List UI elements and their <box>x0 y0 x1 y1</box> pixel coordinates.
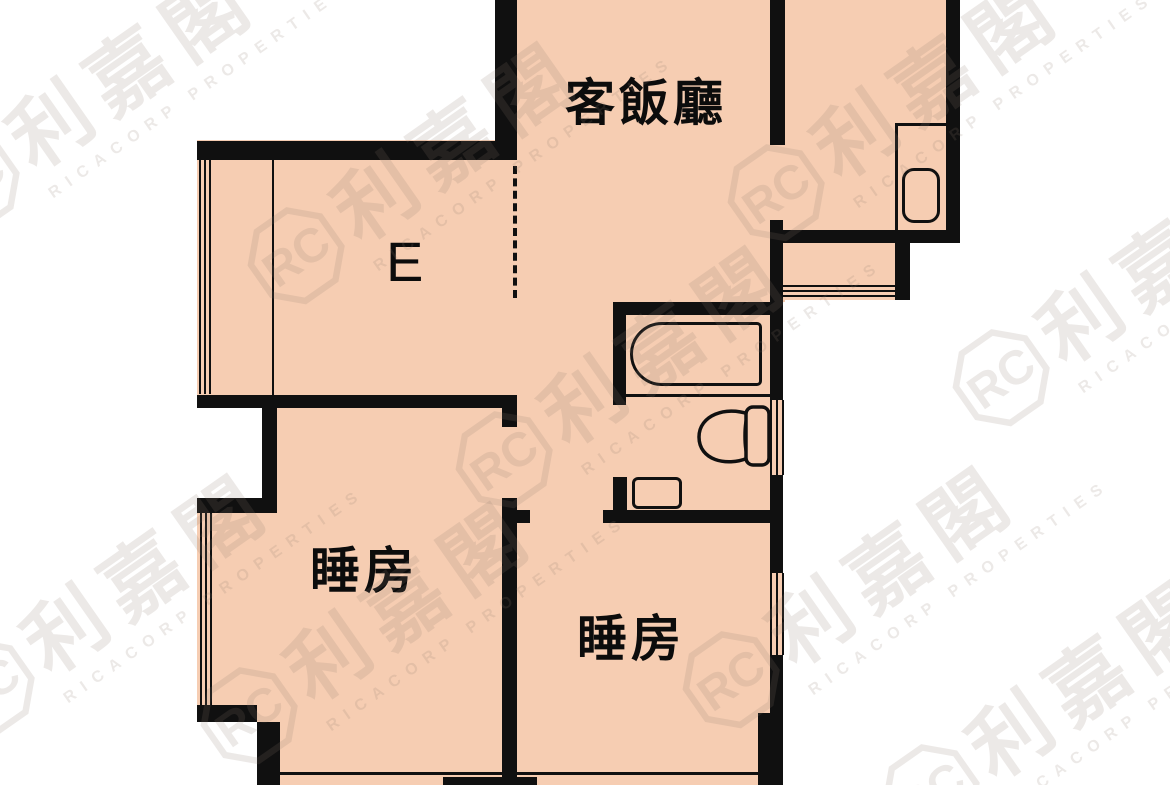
unit-label: E <box>386 234 423 290</box>
window-glazing-line <box>782 573 784 655</box>
wall-segment <box>603 510 778 523</box>
window-glazing-line <box>783 290 895 292</box>
window-glazing-line <box>210 513 212 705</box>
wall-segment <box>502 408 517 427</box>
svg-text:RC: RC <box>888 752 975 785</box>
room-e-floor <box>197 140 517 408</box>
wall-segment <box>517 510 530 523</box>
watermark-latin: RICACORP PROPERTIES <box>1076 174 1170 397</box>
watermark-cjk: 利嘉閣 <box>741 385 1105 689</box>
bedroom-2-label: 睡房 <box>577 614 685 664</box>
layout-dashed-line <box>513 166 517 298</box>
wall-segment <box>770 475 783 573</box>
toilet-icon <box>686 402 772 470</box>
ricacorp-logo-icon: RC <box>0 624 50 752</box>
bathtub-screen-line <box>626 394 770 397</box>
window-glazing-line <box>776 573 778 655</box>
bedroom-2-sill-line <box>517 772 758 775</box>
window-glazing-line <box>770 573 772 655</box>
watermark-latin: RICACORP PROPERTIES <box>806 476 1114 699</box>
window-glazing-line <box>200 513 202 705</box>
wall-segment <box>197 705 257 722</box>
wall-segment <box>613 302 778 315</box>
wall-segment <box>783 230 958 243</box>
svg-text:RC: RC <box>958 337 1045 420</box>
watermark-cjk: 利嘉閣 <box>941 498 1170 785</box>
wall-segment <box>197 498 277 513</box>
bay-ledge-line <box>272 160 274 395</box>
window-glazing-line <box>782 400 784 475</box>
wall-segment <box>770 220 783 315</box>
svg-text:RC: RC <box>0 142 15 225</box>
wall-segment <box>257 722 280 785</box>
window-glazing-line <box>776 400 778 475</box>
ricacorp-logo-icon: RC <box>867 729 995 785</box>
watermark: RC 利嘉閣RICACORP PROPERTIES <box>856 498 1170 785</box>
washbasin-icon <box>632 477 682 509</box>
wall-segment <box>770 655 783 713</box>
wall-segment <box>613 302 626 405</box>
window-glazing-line <box>770 400 772 475</box>
bedroom-1-label: 睡房 <box>310 546 418 596</box>
wall-segment <box>946 0 960 243</box>
svg-text:RC: RC <box>0 647 30 730</box>
wall-segment <box>613 477 627 523</box>
window-glazing-line <box>209 160 211 394</box>
wall-segment <box>502 498 517 785</box>
ricacorp-logo-icon: RC <box>0 119 35 247</box>
watermark-cjk: 利嘉閣 <box>1011 83 1170 387</box>
living-dining-floor <box>495 0 785 302</box>
wall-segment <box>197 141 517 160</box>
watermark-latin: RICACORP PROPERTIES <box>1006 589 1170 785</box>
wall-segment <box>197 395 517 408</box>
bedroom-1-sill-line <box>280 772 502 775</box>
window-glazing-line <box>783 295 895 297</box>
wall-segment <box>495 0 517 160</box>
wall-segment <box>770 0 785 145</box>
wall-segment <box>758 713 783 785</box>
living-dining-label: 客飯廳 <box>565 78 727 128</box>
ricacorp-logo-icon: RC <box>937 314 1065 442</box>
wall-segment <box>895 243 910 300</box>
wall-segment <box>443 777 537 785</box>
window-glazing-line <box>783 285 895 287</box>
wall-segment <box>770 302 783 400</box>
floor-plan: 客飯廳 E 睡房 睡房 RC 利嘉閣RICACORP PROPERTIES RC… <box>0 0 1170 785</box>
window-glazing-line <box>204 160 206 394</box>
watermark: RC 利嘉閣RICACORP PROPERTIES <box>926 83 1170 458</box>
wall-segment <box>262 405 277 498</box>
kitchen-sink-icon <box>902 168 940 223</box>
bathtub-icon <box>630 322 762 386</box>
window-glazing-line <box>205 513 207 705</box>
window-glazing-line <box>199 160 201 394</box>
